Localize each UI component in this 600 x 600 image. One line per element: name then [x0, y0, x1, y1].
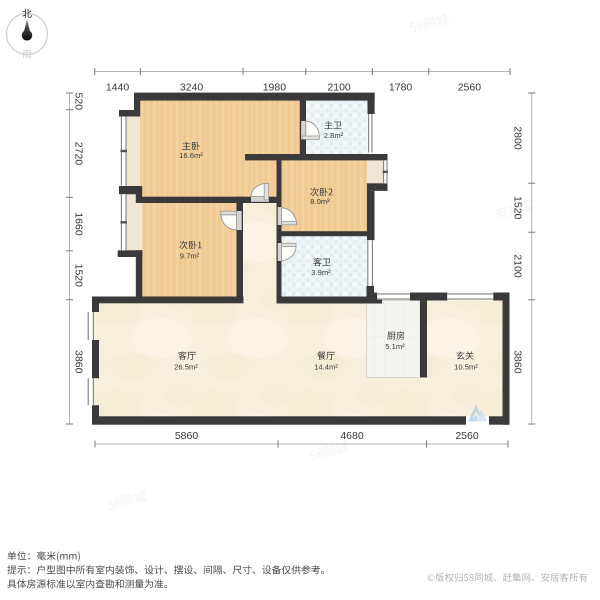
svg-text:16.6m²: 16.6m² — [179, 151, 203, 160]
svg-text:10.5m²: 10.5m² — [454, 362, 478, 371]
svg-text:3860: 3860 — [511, 350, 523, 374]
svg-text:8.0m²: 8.0m² — [310, 197, 330, 206]
svg-text:2720: 2720 — [72, 142, 84, 166]
svg-text:2.8m²: 2.8m² — [324, 131, 344, 140]
svg-text:9.7m²: 9.7m² — [180, 251, 200, 260]
svg-text:3240: 3240 — [180, 82, 204, 94]
svg-text:520: 520 — [72, 93, 84, 111]
svg-text:1660: 1660 — [72, 212, 84, 236]
svg-text:1520: 1520 — [511, 196, 523, 220]
svg-text:4680: 4680 — [340, 430, 364, 442]
svg-text:2560: 2560 — [458, 82, 482, 94]
svg-text:1980: 1980 — [263, 82, 287, 94]
svg-text:14.4m²: 14.4m² — [314, 362, 338, 371]
svg-text:1780: 1780 — [389, 82, 413, 94]
svg-text:1520: 1520 — [72, 264, 84, 288]
svg-text:26.5m²: 26.5m² — [174, 362, 198, 371]
svg-text:2100: 2100 — [511, 254, 523, 278]
svg-text:3.9m²: 3.9m² — [311, 268, 331, 277]
svg-text:2800: 2800 — [511, 126, 523, 150]
svg-text:5.1m²: 5.1m² — [385, 342, 405, 351]
svg-text:2560: 2560 — [455, 430, 479, 442]
svg-text:1440: 1440 — [106, 82, 130, 94]
svg-text:5860: 5860 — [175, 430, 199, 442]
svg-text:2100: 2100 — [327, 82, 351, 94]
svg-text:3860: 3860 — [72, 350, 84, 374]
